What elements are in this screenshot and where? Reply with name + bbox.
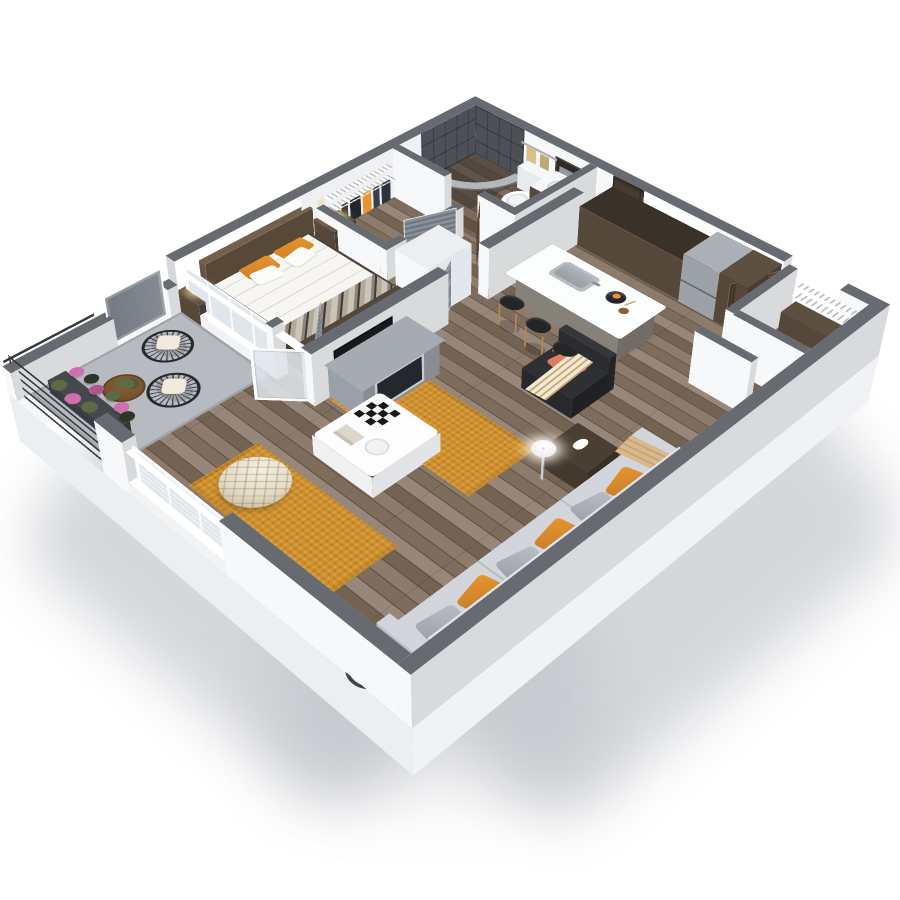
wall-se-s <box>397 664 412 728</box>
chair-cushion-0 <box>155 335 181 349</box>
floorplan-stage <box>0 0 900 900</box>
chair-cushion-1 <box>161 379 188 394</box>
garment-0 <box>381 179 391 204</box>
